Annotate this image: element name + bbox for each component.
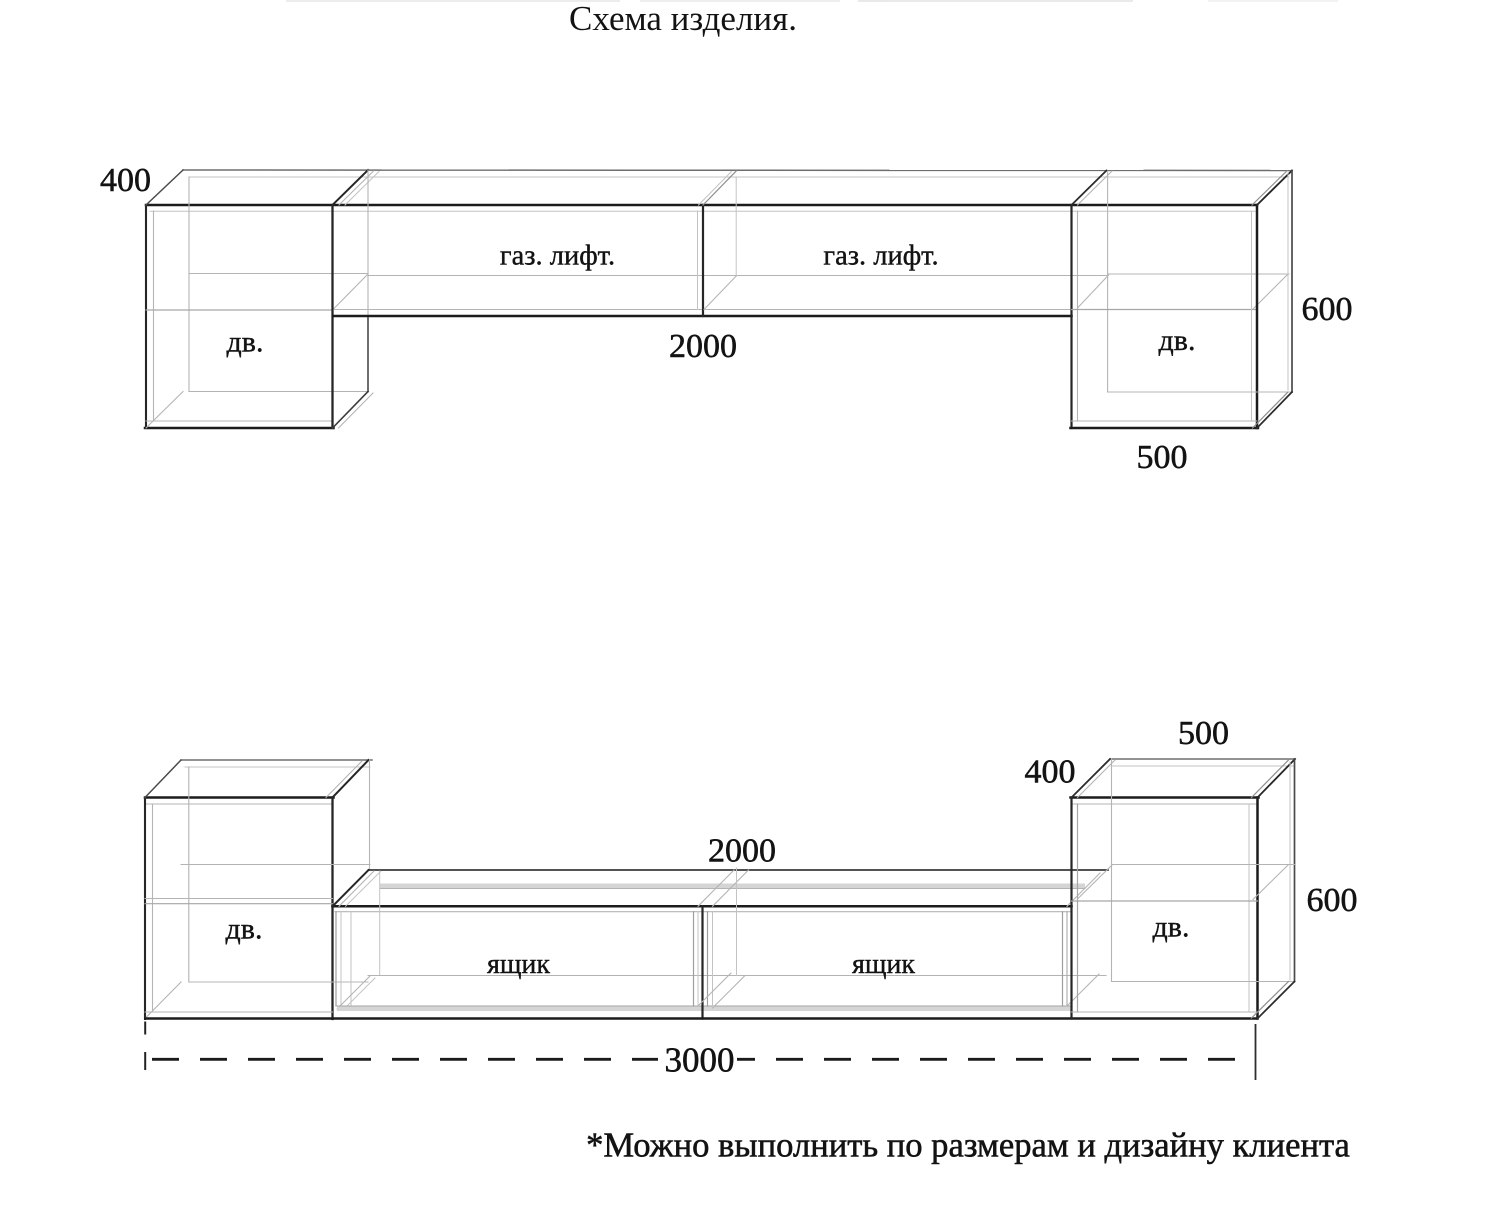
svg-text:Схема изделия.: Схема изделия. — [569, 0, 797, 38]
svg-text:дв.: дв. — [1159, 324, 1196, 357]
svg-text:ящик: ящик — [487, 949, 550, 980]
svg-text:*Можно выполнить по размерам и: *Можно выполнить по размерам и дизайну к… — [586, 1127, 1350, 1165]
svg-text:дв.: дв. — [1153, 911, 1190, 944]
svg-text:400: 400 — [100, 162, 151, 199]
svg-text:2000: 2000 — [708, 833, 776, 870]
svg-text:600: 600 — [1302, 291, 1353, 328]
svg-text:600: 600 — [1307, 882, 1358, 919]
svg-text:газ. лифт.: газ. лифт. — [823, 241, 938, 272]
svg-text:400: 400 — [1025, 754, 1076, 791]
svg-text:ящик: ящик — [852, 949, 915, 980]
svg-text:3000: 3000 — [665, 1041, 735, 1080]
svg-text:дв.: дв. — [226, 913, 263, 946]
svg-text:500: 500 — [1178, 715, 1229, 752]
svg-text:дв.: дв. — [227, 326, 264, 359]
svg-text:2000: 2000 — [669, 328, 737, 365]
svg-text:500: 500 — [1137, 439, 1188, 476]
svg-text:газ. лифт.: газ. лифт. — [500, 241, 615, 272]
